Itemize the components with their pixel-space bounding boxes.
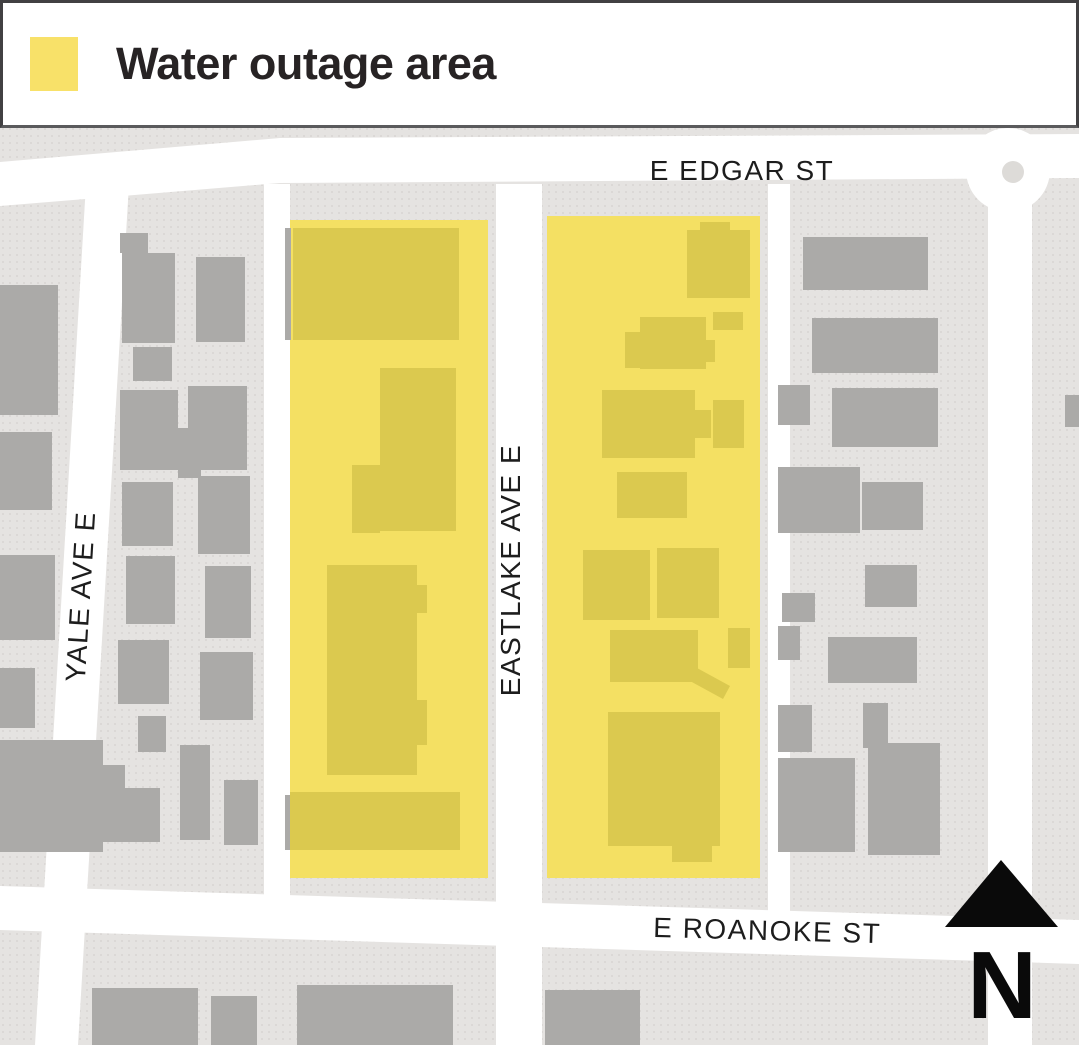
building bbox=[862, 482, 923, 530]
building bbox=[868, 743, 940, 855]
building bbox=[198, 476, 250, 554]
building bbox=[803, 237, 928, 290]
legend-label: Water outage area bbox=[116, 38, 496, 90]
building bbox=[0, 740, 103, 852]
outage-building bbox=[640, 317, 706, 369]
legend: Water outage area bbox=[0, 0, 1079, 128]
building bbox=[778, 705, 812, 752]
building bbox=[178, 428, 201, 478]
building bbox=[832, 388, 938, 447]
outage-building bbox=[695, 410, 711, 438]
outage-building bbox=[713, 400, 744, 448]
building bbox=[778, 758, 855, 852]
building bbox=[196, 257, 245, 342]
street-label-e-roanoke-st: E ROANOKE ST bbox=[653, 912, 882, 949]
building bbox=[92, 988, 198, 1045]
building bbox=[205, 566, 251, 638]
building bbox=[138, 716, 166, 752]
outage-building bbox=[380, 368, 456, 531]
building bbox=[211, 996, 257, 1045]
outage-building bbox=[617, 472, 687, 518]
water-outage-map: E EDGAR ST YALE AVE E EASTLAKE AVE E E R… bbox=[0, 0, 1079, 1045]
building bbox=[118, 640, 169, 704]
building bbox=[1065, 395, 1079, 427]
outage-building bbox=[610, 630, 698, 682]
building bbox=[778, 626, 800, 660]
building bbox=[778, 467, 860, 533]
building bbox=[180, 745, 210, 840]
building bbox=[0, 668, 35, 728]
building bbox=[812, 318, 938, 373]
building bbox=[95, 788, 160, 842]
map-canvas: E EDGAR ST YALE AVE E EASTLAKE AVE E E R… bbox=[0, 0, 1079, 1045]
building bbox=[0, 555, 55, 640]
outage-building bbox=[713, 312, 743, 330]
street-label-eastlake-ave-e: EASTLAKE AVE E bbox=[495, 444, 526, 696]
outage-building bbox=[290, 792, 460, 850]
outage-building bbox=[705, 340, 715, 362]
building bbox=[120, 233, 148, 253]
outage-building bbox=[293, 228, 459, 340]
building bbox=[122, 253, 175, 343]
building bbox=[297, 985, 453, 1045]
street-label-e-edgar-st: E EDGAR ST bbox=[650, 155, 835, 186]
outage-building bbox=[625, 332, 643, 368]
roundabout bbox=[966, 128, 1050, 212]
building bbox=[863, 703, 888, 748]
outage-building bbox=[687, 230, 750, 298]
roundabout-center-dot bbox=[1002, 161, 1024, 183]
outage-building bbox=[602, 390, 695, 458]
building bbox=[133, 347, 172, 381]
outage-building bbox=[415, 585, 427, 613]
outage-color-swatch bbox=[30, 37, 78, 91]
building bbox=[0, 432, 52, 510]
building bbox=[778, 385, 810, 425]
outage-building bbox=[728, 628, 750, 668]
building bbox=[120, 390, 178, 470]
building bbox=[200, 652, 253, 720]
outage-building bbox=[352, 465, 380, 533]
building bbox=[545, 990, 640, 1045]
building bbox=[0, 285, 58, 415]
outage-building bbox=[583, 550, 650, 620]
building bbox=[126, 556, 175, 624]
outage-building bbox=[608, 712, 720, 846]
building bbox=[828, 637, 917, 683]
building bbox=[782, 593, 815, 622]
building bbox=[285, 228, 291, 340]
outage-building bbox=[327, 565, 417, 775]
north-label: N bbox=[967, 932, 1036, 1039]
building bbox=[224, 780, 258, 845]
building bbox=[865, 565, 917, 607]
outage-building bbox=[415, 700, 427, 745]
outage-building bbox=[657, 548, 719, 618]
building bbox=[122, 482, 173, 546]
outage-building bbox=[672, 846, 712, 862]
